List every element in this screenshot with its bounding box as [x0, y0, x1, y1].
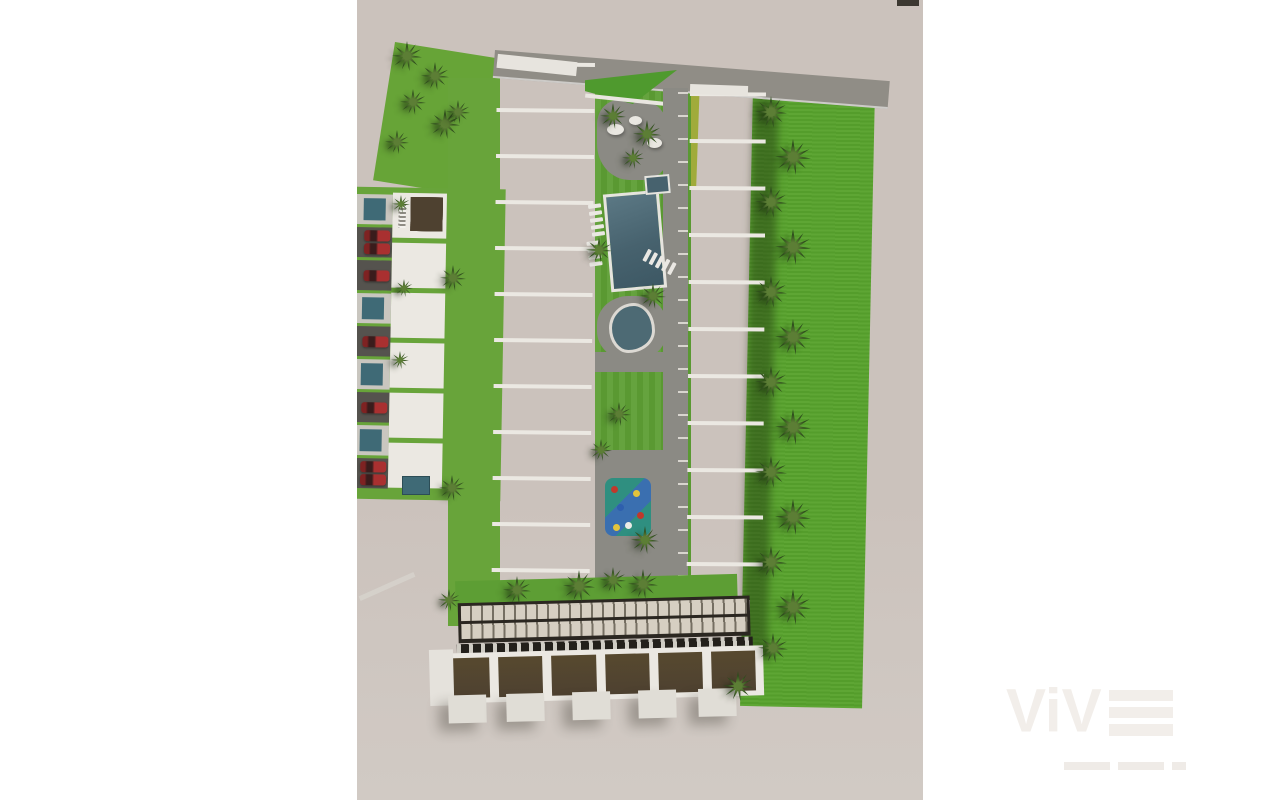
parked-car-red — [364, 243, 390, 254]
watermark-tagline-bar — [1064, 762, 1110, 770]
townhouse-row-left — [491, 62, 595, 615]
roof — [551, 655, 596, 696]
duplex-house — [390, 343, 445, 389]
roof — [605, 653, 650, 694]
driveway — [357, 326, 391, 357]
watermark-tagline — [1064, 762, 1236, 770]
townhouse-unit — [687, 515, 763, 563]
play-equipment — [637, 512, 644, 519]
parked-car-red — [362, 336, 388, 347]
townhouse-row-right — [686, 92, 766, 610]
townhouse-unit — [687, 421, 763, 469]
play-equipment — [625, 522, 632, 529]
private-pool-slot — [357, 425, 389, 456]
driveway — [357, 392, 390, 423]
duplex-house — [391, 243, 446, 289]
play-equipment — [617, 504, 624, 511]
roof-sliver-top-edge — [897, 0, 919, 6]
spa-pool — [644, 174, 671, 195]
roof — [410, 197, 443, 232]
aerial-render-image — [357, 0, 923, 800]
swimming-pool — [603, 190, 667, 293]
carport-pergola — [458, 596, 751, 644]
private-pool — [362, 297, 384, 319]
parked-car-red — [361, 402, 387, 413]
townhouse-unit — [688, 327, 764, 375]
townhouse-unit — [688, 374, 764, 422]
parked-car-red — [360, 474, 386, 485]
south-terrace-block — [427, 569, 773, 728]
watermark-tagline-bar — [1172, 762, 1186, 770]
private-pool — [364, 198, 386, 220]
townhouse-unit — [495, 246, 593, 293]
duplex-block-left — [357, 192, 447, 494]
townhouse-unit — [494, 338, 592, 385]
townhouse-unit — [689, 186, 765, 234]
play-equipment — [611, 486, 618, 493]
private-pool-slot — [357, 293, 391, 324]
townhouse-unit — [689, 233, 765, 281]
watermark-logo: ViV — [1006, 682, 1236, 740]
townhouse-unit — [492, 476, 590, 523]
duplex-houses — [388, 193, 447, 494]
watermark-tagline-bar — [1118, 762, 1164, 770]
play-equipment — [633, 490, 640, 497]
duplex-house — [389, 393, 444, 439]
townhouse-unit — [493, 384, 591, 431]
watermark-brand-text: ViV — [1006, 681, 1102, 740]
watermark-letter-e-glyph — [1109, 690, 1173, 736]
duplex-house — [390, 293, 445, 339]
townhouse-unit — [496, 108, 594, 155]
watermark: ViV — [1006, 682, 1236, 782]
parked-car-red — [363, 270, 389, 281]
garage-box — [572, 691, 611, 720]
private-pool — [359, 429, 381, 451]
playground-mat — [605, 478, 651, 536]
driveway — [357, 260, 392, 291]
townhouse-unit — [687, 468, 763, 516]
utility-container — [402, 476, 430, 495]
garage-box — [506, 693, 545, 722]
page: ViV — [0, 0, 1280, 800]
garage-box — [698, 688, 737, 717]
townhouse-unit — [494, 292, 592, 339]
roof — [658, 652, 703, 693]
townhouse-unit — [688, 280, 764, 328]
parked-car-red — [364, 230, 390, 241]
townhouse-unit — [492, 522, 590, 569]
garage-box — [638, 690, 677, 719]
retaining-wall-sliver — [359, 572, 416, 601]
townhouse-unit — [496, 154, 594, 201]
townhouse-unit — [493, 430, 591, 477]
entrance-garden-plaza — [597, 100, 669, 180]
private-pool — [361, 363, 383, 385]
roof — [711, 650, 756, 691]
row-end-wall — [690, 84, 748, 96]
roof — [498, 656, 543, 697]
internal-road — [663, 88, 688, 608]
driveway — [357, 458, 388, 489]
private-pool-slot — [357, 359, 390, 390]
pergola-slats — [461, 617, 747, 639]
private-pool-slot — [357, 194, 393, 225]
kidney-pond — [609, 303, 655, 353]
driveway — [357, 227, 392, 258]
townhouse-unit — [689, 139, 765, 187]
parked-car-red — [360, 461, 386, 472]
garage-box — [448, 694, 487, 723]
play-equipment — [613, 524, 620, 531]
townhouse-unit — [495, 200, 593, 247]
stairs — [398, 202, 405, 228]
townhouse-unit — [690, 92, 766, 140]
